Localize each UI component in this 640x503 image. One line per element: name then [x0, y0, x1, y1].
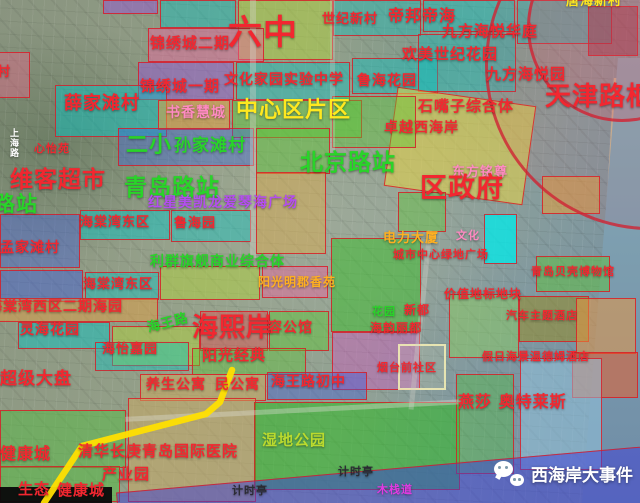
map-label: 阳光明郡香苑 [258, 276, 336, 288]
map-label: 超级大盘 [0, 371, 72, 388]
map-label: 海棠湾东区 [83, 278, 153, 291]
map-label: 假日海景温德姆酒店 [482, 351, 590, 362]
map-label: 文化 [456, 230, 480, 241]
map-label: 海怡嘉园 [102, 343, 158, 356]
map-label: 天津路枢 [545, 84, 640, 110]
map-label: 孟家滩村 [0, 241, 60, 255]
map-label: 汽车主题酒店 [506, 310, 578, 321]
map-label: 欢美世纪花园 [402, 47, 498, 62]
map-label: 海棠湾东区 [80, 216, 150, 229]
map-label: 湿地公园 [262, 433, 326, 448]
map-label: 鲁海花园 [357, 74, 417, 88]
map-label: 产业园 [102, 467, 150, 482]
map-label: 六中 [228, 16, 298, 50]
map-label: 健康城 [0, 446, 51, 462]
map-label: 红星美凯龙爱琴海广场 [148, 196, 298, 210]
map-label: 电力大厦 [383, 232, 439, 245]
map-label: 海熙岸 [192, 315, 273, 341]
map-parcel [160, 0, 236, 28]
map-label: 新都 [404, 304, 430, 316]
map-parcel [103, 0, 158, 14]
map-screenshot: 唐海新村帝邦帝海世纪新村六中锦绣城二期九方海悦华庭欢美世纪花园九方海悦园天津路枢… [0, 0, 640, 503]
map-label: 路站 [0, 194, 38, 215]
map-label: 锦绣城二期 [150, 36, 230, 51]
map-label: 城市中心绿地广场 [393, 249, 489, 260]
map-label: 阳光经典 [202, 348, 266, 363]
map-label: 计时亭 [232, 485, 268, 496]
map-label: 价值地标地块 [444, 288, 522, 300]
map-parcel [256, 172, 326, 254]
map-label: 锦绣城一期 [140, 79, 220, 94]
map-label: 维客超市 [10, 169, 106, 192]
map-label: 容公馆 [268, 321, 313, 335]
map-parcel [449, 294, 519, 358]
map-label: 二小 [126, 135, 172, 157]
map-label: 鲁海园 [174, 217, 216, 230]
map-label: 清华长庚青岛国际医院 [78, 444, 238, 459]
map-label: 区政府 [420, 175, 504, 202]
map-label: 青岛贝壳博物馆 [531, 266, 615, 277]
map-label: 孙家滩村 [174, 138, 246, 155]
watermark: 西海岸大事件 [494, 461, 633, 486]
map-label: 九方海悦华庭 [442, 24, 538, 39]
map-parcel [160, 266, 260, 300]
map-label: 利群旗舰商业综合体 [150, 255, 285, 269]
map-label: 书香慧城 [166, 106, 226, 120]
map-label: 村 [0, 66, 11, 79]
map-label: 上海路 [8, 128, 17, 158]
map-label: 木栈道 [377, 484, 413, 495]
map-label: 生态 [18, 482, 50, 497]
map-label: 薛家滩村 [64, 95, 140, 113]
map-label: 北京路站 [300, 152, 396, 175]
map-label: 计时亭 [338, 466, 374, 477]
watermark-text: 西海岸大事件 [531, 461, 633, 486]
map-label: 烟台前社区 [377, 362, 437, 373]
map-label: 海棠湾西区二期海园 [0, 300, 123, 314]
map-label: 花园 [372, 306, 396, 317]
map-label: 民公寓 [215, 378, 260, 392]
map-label: 世纪新村 [322, 13, 378, 26]
map-label: 海韵丽都 [370, 322, 422, 334]
map-label: 九方海悦园 [486, 67, 566, 82]
map-label: 健康城 [57, 483, 105, 498]
map-parcel [576, 298, 636, 354]
map-label: 中心区片区 [236, 100, 351, 122]
map-label: 唐海新村 [566, 0, 622, 8]
map-label: 卓越西海岸 [384, 121, 459, 135]
wechat-icon [494, 461, 524, 486]
map-label: 石嘴子综合体 [418, 99, 514, 114]
map-label: 文化家园实验中学 [224, 73, 344, 87]
map-label: 海王路初中 [271, 375, 346, 389]
map-label: 灵海花园 [20, 323, 80, 337]
map-label: 养生公寓 [146, 378, 206, 392]
map-label: 燕莎 奥特莱斯 [458, 394, 567, 410]
map-label: 心怡苑 [34, 143, 70, 154]
